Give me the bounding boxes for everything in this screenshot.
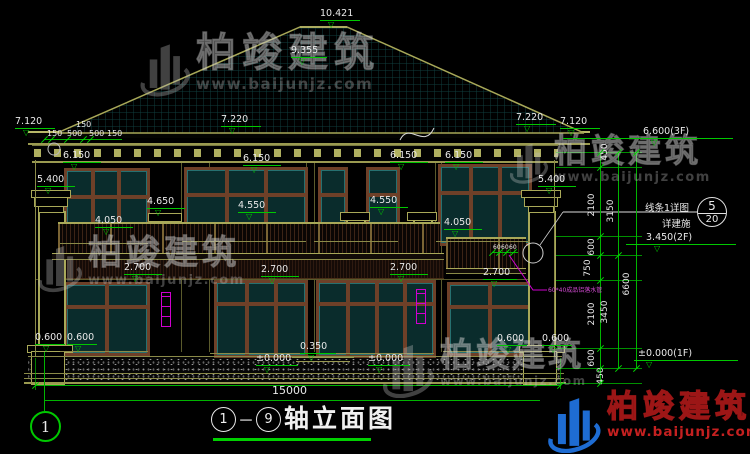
sheet-number: 20: [706, 214, 719, 225]
elevation-marker: 0.600 ▽: [542, 334, 572, 353]
elevation-marker: 3.450(2F) ▽: [646, 233, 736, 252]
elevation-marker: 0.600 ▽: [497, 334, 527, 353]
elevation-marker: 0.600 ▽: [35, 333, 65, 352]
callout-leader: [540, 212, 563, 245]
elevation-marker: 4.550 ▽: [370, 196, 408, 215]
elevation-marker: 0.350 ▽: [300, 342, 336, 361]
dim-text: 750: [583, 259, 593, 276]
title-text: 轴立面图: [284, 406, 396, 432]
elevation-marker: 5.400 ▽: [538, 175, 576, 194]
callout-note: 详建施: [662, 216, 691, 230]
elevation-marker: 0.600 ▽: [67, 333, 97, 352]
detail-bubble: 5 20: [697, 197, 727, 227]
elevation-marker: 9.355 ▽: [291, 46, 327, 65]
elevation-marker: 7.220 ▽: [516, 113, 556, 132]
drawing-title: 1 － 9 轴立面图: [211, 406, 396, 432]
elevation-marker: 5.400 ▽: [37, 175, 75, 194]
elevation-marker: 2.700 ▽: [390, 263, 428, 282]
downpipe-symbol: [416, 289, 426, 324]
elevation-marker: 4.050 ▽: [95, 216, 133, 235]
downpipe-note: 60*40成品铝落水管: [548, 285, 602, 294]
dim-text: 600: [587, 238, 597, 255]
axis-bubble-1: 1: [30, 411, 61, 442]
elevation-marker: 6.600(3F) ▽: [643, 127, 733, 146]
brand-url: www.baijunjz.com: [607, 424, 750, 440]
downpipe-symbol: [161, 292, 171, 327]
elevation-marker: 4.650 ▽: [147, 197, 185, 216]
cornice-detail-circle: [48, 143, 60, 155]
cad-elevation-drawing: 15000 1 线条1详图 详建施 5 20 60*40成品铝落水管 10.42…: [0, 0, 750, 454]
brand-name: 柏竣建筑: [607, 391, 750, 424]
title-axis-start: 1: [211, 407, 236, 432]
dim-text: 600: [587, 349, 597, 366]
title-axis-end: 9: [256, 407, 281, 432]
elevation-marker: 7.120 ▽: [560, 117, 600, 136]
elevation-marker: 2.700 ▽: [124, 263, 162, 282]
dim-text: 150: [107, 130, 122, 138]
axis-line-1: [44, 352, 45, 411]
dim-text: 3450: [600, 301, 610, 324]
detail-number: 5: [698, 200, 726, 214]
elevation-marker: 2.700 ▽: [261, 265, 299, 284]
elevation-marker: 7.220 ▽: [221, 115, 261, 134]
elevation-marker: 4.050 ▽: [444, 218, 482, 237]
elevation-marker: 6.150 ▽: [63, 151, 101, 170]
dim-text: 3150: [606, 200, 616, 223]
callout-label: 线条1详图: [645, 200, 689, 214]
elevation-marker: ±0.000 ▽: [256, 354, 298, 373]
title-dash: －: [238, 407, 254, 431]
dim-text: 2100: [587, 194, 597, 217]
title-underline: [213, 438, 371, 441]
elevation-marker: 6.150 ▽: [243, 154, 281, 173]
elevation-marker: ±0.000(1F) ▽: [638, 349, 738, 368]
dim-text: 6600: [622, 273, 632, 296]
dim-text: 150: [76, 121, 91, 129]
dim-text: 2100: [587, 303, 597, 326]
elevation-marker: 4.550 ▽: [238, 201, 276, 220]
total-width-dim: 15000: [272, 387, 307, 395]
brand-logo: 柏竣建筑 www.baijunjz.com: [540, 389, 750, 454]
brand-logo-icon: [544, 391, 602, 453]
axis-number: 1: [41, 418, 51, 436]
elevation-marker: 10.421 ▽: [320, 9, 360, 28]
elevation-marker: 6.150 ▽: [445, 151, 483, 170]
elevation-marker: 6.150 ▽: [390, 151, 428, 170]
elevation-marker: 2.700 ▽: [483, 268, 517, 287]
elevation-marker: ±0.000 ▽: [368, 354, 410, 373]
dim-chain-outer: [636, 152, 637, 368]
dim-chain-mid: [618, 152, 619, 368]
molding-detail-circle: [523, 243, 543, 263]
